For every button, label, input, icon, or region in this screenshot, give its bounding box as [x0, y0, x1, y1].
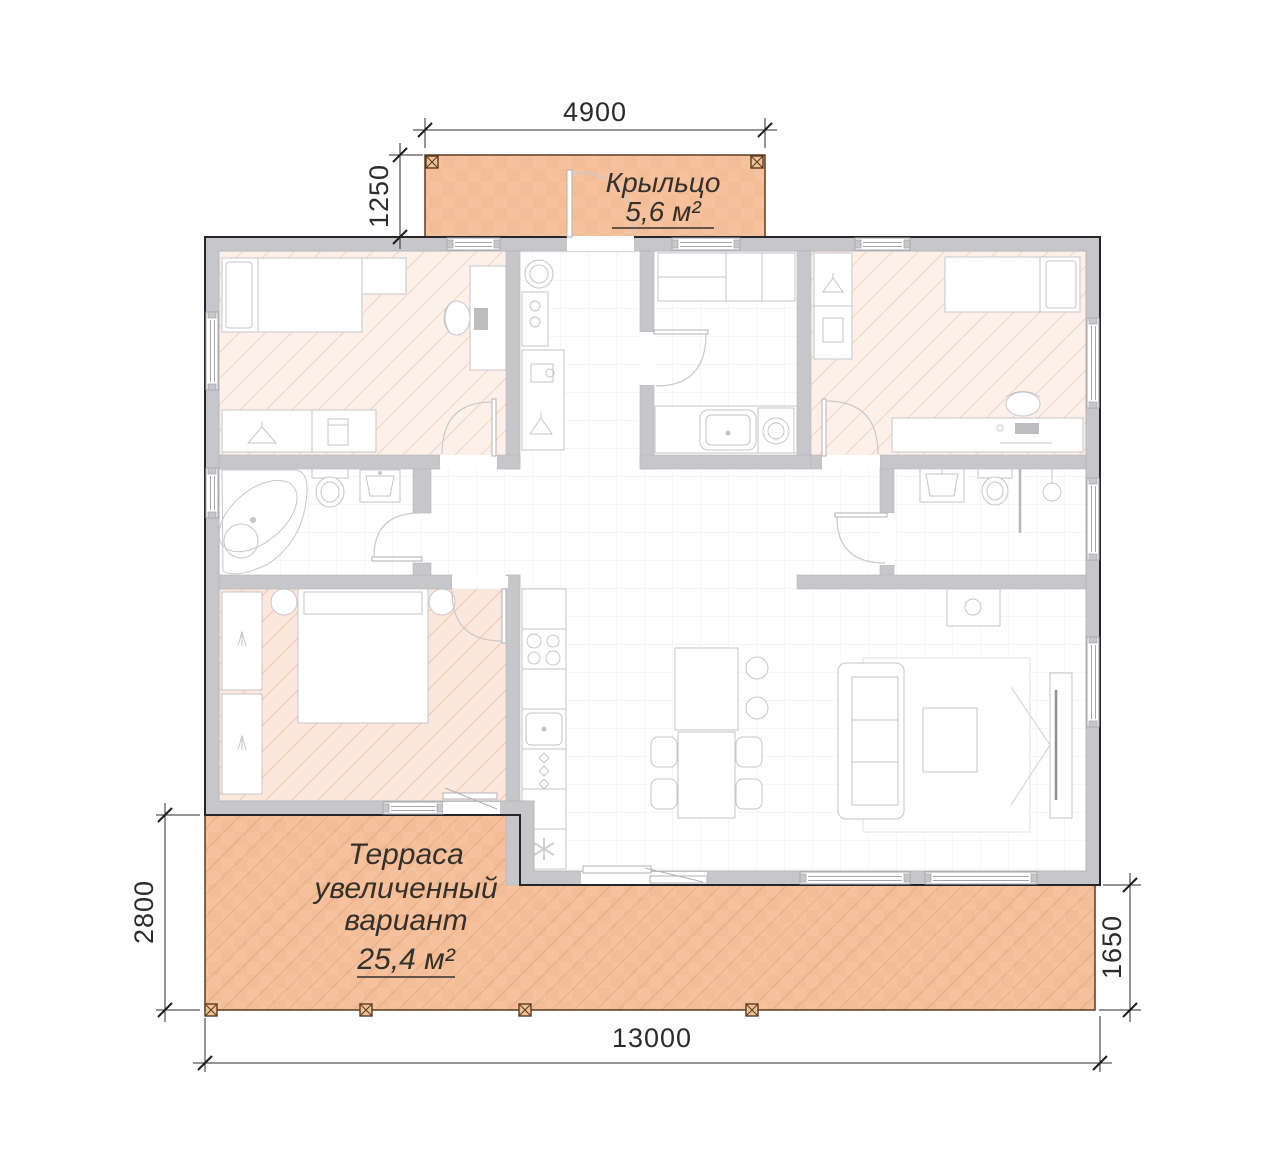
porch-label: Крыльцо: [606, 167, 721, 198]
window: [672, 238, 740, 250]
floor-plan-page: 4900 1250 2800 1650: [0, 0, 1280, 1152]
shelf-cabinet: [522, 292, 548, 346]
window: [206, 468, 218, 518]
terrace-label-line2: увеличенный: [312, 872, 498, 905]
window: [1087, 318, 1099, 408]
bar-stool: [746, 657, 768, 679]
terrace-post-marker: [360, 1004, 372, 1016]
window: [800, 872, 910, 884]
chair: [651, 779, 677, 809]
window: [1087, 478, 1099, 560]
porch-post-marker: [426, 156, 438, 168]
kitchen-island: [675, 648, 738, 730]
dimension-terrace-left: 2800: [129, 803, 200, 1022]
nightstand: [429, 589, 455, 615]
pillows: [304, 592, 422, 614]
chair: [736, 737, 762, 767]
terrace-post-marker: [746, 1004, 758, 1016]
porch-post-marker: [751, 156, 763, 168]
terrace-label-line1: Терраса: [348, 838, 464, 871]
tv-console: [1050, 673, 1072, 818]
window: [855, 238, 910, 250]
wardrobe: [222, 410, 376, 452]
dimension-porch-depth: 1250: [364, 143, 423, 249]
sideboard: [947, 589, 1000, 626]
dim-label-4900: 4900: [563, 97, 627, 127]
pillow: [1046, 261, 1076, 308]
nightstand: [271, 589, 297, 615]
toilet: [982, 477, 1008, 505]
sofa: [838, 663, 904, 819]
terrace-post-marker: [205, 1004, 217, 1016]
window: [206, 312, 218, 390]
window: [383, 802, 443, 814]
window: [925, 872, 1037, 884]
monitor: [1015, 423, 1039, 434]
window: [1087, 637, 1099, 727]
window: [447, 238, 500, 250]
terrace-post-marker: [519, 1004, 531, 1016]
desk-chair: [1006, 392, 1040, 416]
wall-mirror: [525, 260, 553, 288]
desk: [892, 418, 1083, 452]
bar-stool: [746, 697, 768, 719]
hall-cabinet: [522, 350, 564, 450]
dining-table: [678, 732, 735, 818]
chair: [736, 779, 762, 809]
dimension-porch-width: 4900: [413, 97, 777, 148]
pillow: [226, 262, 252, 328]
coffee-table: [923, 708, 977, 772]
nightstand: [362, 258, 406, 294]
monitor: [474, 308, 488, 330]
dim-label-2800: 2800: [129, 880, 159, 944]
porch-area-label: 5,6 м²: [625, 196, 702, 227]
terrace-label-line3: вариант: [344, 904, 467, 937]
dim-label-1250: 1250: [364, 164, 394, 228]
dim-label-1650: 1650: [1097, 915, 1127, 979]
chair: [651, 737, 677, 767]
dimension-house-width: 13000: [193, 1016, 1112, 1072]
terrace-area-label: 25,4 м²: [356, 943, 455, 976]
dim-label-13000: 13000: [612, 1023, 692, 1053]
floor-plan-drawing: 4900 1250 2800 1650: [0, 0, 1280, 1152]
dimension-terrace-right: 1650: [1097, 873, 1141, 1022]
